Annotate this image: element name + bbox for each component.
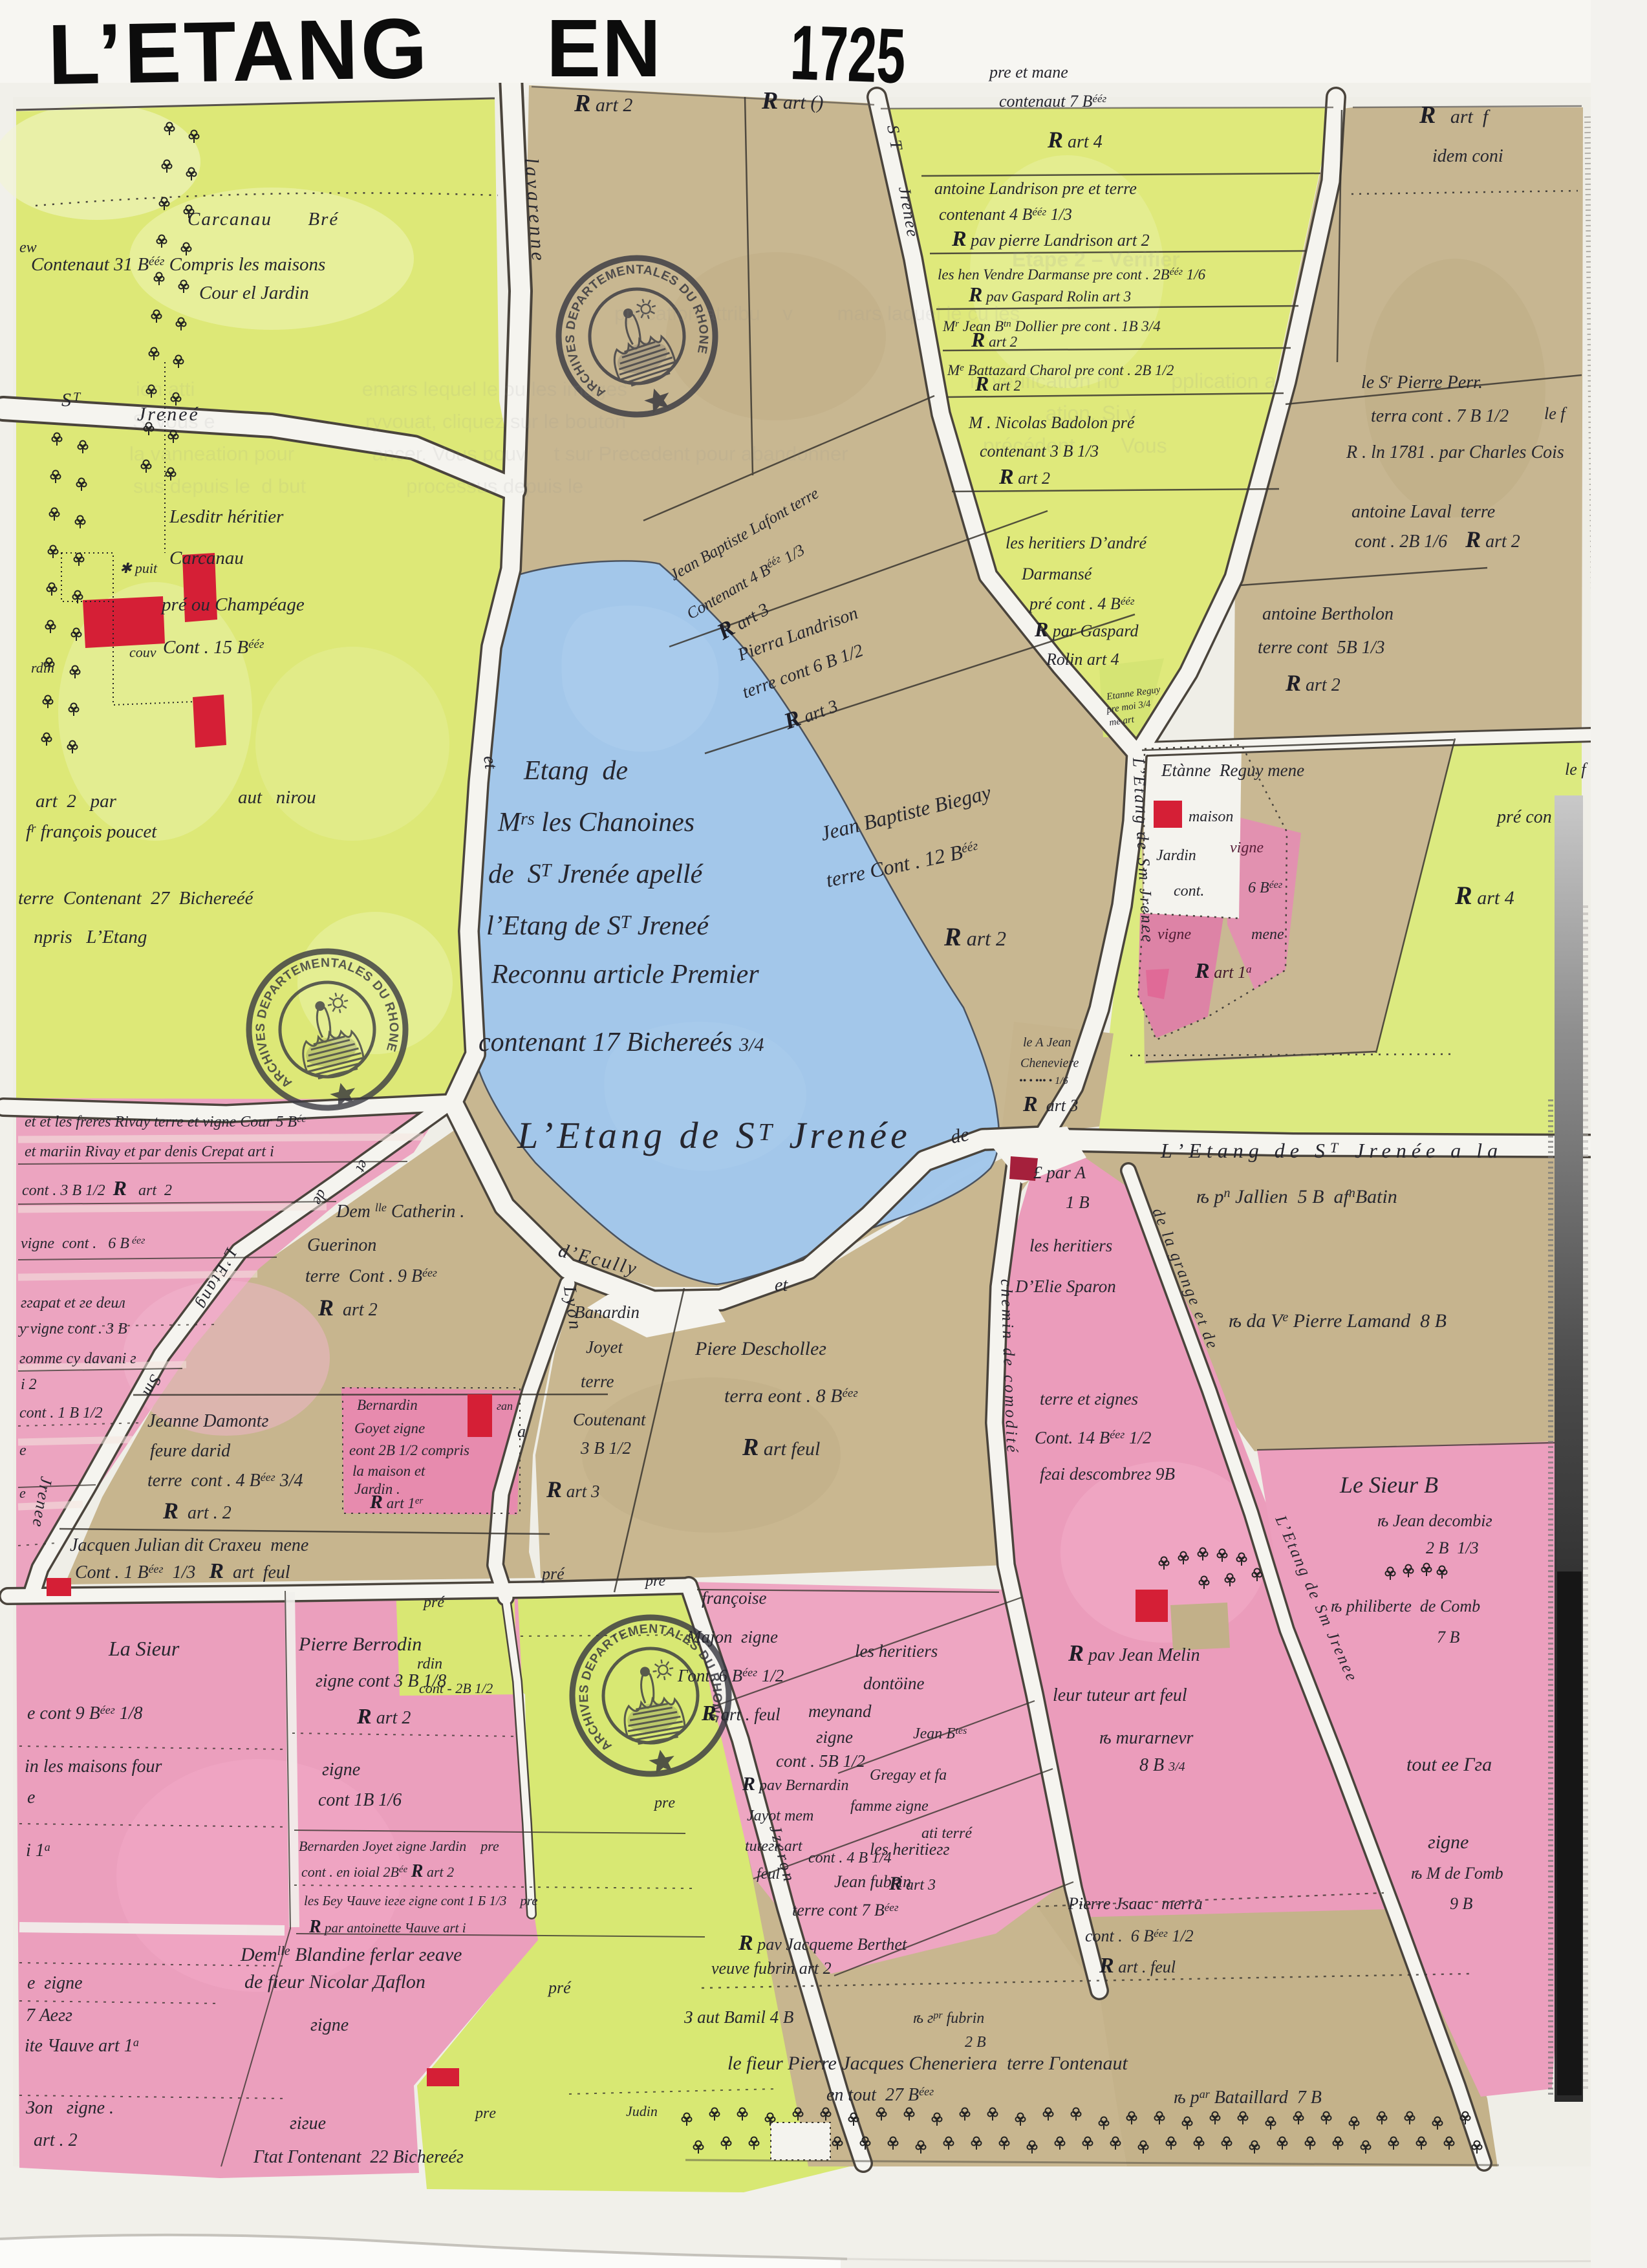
svg-text:і 2: і 2 [21, 1376, 37, 1393]
svg-text:le f: le f [1544, 404, 1567, 423]
svg-text:Гont. 6 Béег 1/2: Гont. 6 Béег 1/2 [677, 1666, 784, 1685]
svg-text:гigne: гigne [816, 1727, 853, 1747]
svg-text:Зon гigne .: Зon гigne . [26, 2098, 114, 2118]
svg-text:cont . 1 B 1/2: cont . 1 B 1/2 [19, 1405, 103, 1421]
svg-text:EN: EN [546, 3, 662, 94]
svg-text:sus depuis le d but: sus depuis le d but processus depuis le [133, 475, 583, 497]
svg-text:R art 2: R art 2 [574, 90, 632, 117]
svg-text:contenant 4 Bééг 1/3: contenant 4 Bééг 1/3 [939, 205, 1072, 224]
svg-text:Banardin: Banardin [574, 1302, 640, 1322]
svg-text:et marіin Rivay et par denis C: et marіin Rivay et par denis Crepat art … [25, 1143, 274, 1160]
svg-text:е: е [27, 1787, 35, 1808]
svg-text:Le Sieur В: Le Sieur В [1339, 1472, 1438, 1498]
svg-text:vigne: vigne [1230, 839, 1264, 856]
svg-text:✱ puit: ✱ puit [120, 560, 158, 576]
svg-text:Coutenant: Coutenant [573, 1410, 647, 1429]
svg-text:terre: terre [581, 1372, 614, 1391]
svg-text:Darmansé: Darmansé [1021, 565, 1093, 583]
svg-text:Cont . 1 Béег 1/3 R art f: Cont . 1 Béег 1/3 R art feul [75, 1559, 290, 1583]
svg-text:гігue: гігue [290, 2113, 326, 2133]
svg-text:D’Elie Sparon: D’Elie Sparon [1015, 1277, 1116, 1296]
svg-text:Piеrre Jsaac теrra: Piеrre Jsaac теrra [1068, 1894, 1203, 1913]
svg-text:гigne: гigne [322, 1760, 360, 1780]
svg-text:contenant 3 B 1/3: contenant 3 B 1/3 [980, 442, 1099, 460]
svg-text:ѣ Jean decombiг: ѣ Jean decombiг [1377, 1511, 1492, 1530]
svg-text:famme гigne: famme гigne [850, 1798, 929, 1815]
svg-text:R art 2: R art 2 [356, 1705, 411, 1729]
svg-text:L’Etang de ST Jrenée: L’Etang de ST Jrenée [517, 1114, 911, 1156]
svg-text:Si vous e: Si vous e ryvouat, cliquez sur le bouton [133, 410, 626, 433]
svg-text:le f: le f [1565, 760, 1588, 779]
svg-text:la maison et: la maison et [352, 1463, 425, 1479]
svg-text:les hеn Vendre Darmanse pre co: les hеn Vendre Darmanse pre cont . 2Bééг… [938, 266, 1206, 283]
svg-text:Gregay et fa: Gregay et fa [870, 1767, 947, 1784]
svg-text:Demlle Blandine ferlar гeave: Demlle Blandine ferlar гeave [240, 1944, 462, 1965]
svg-text:Carcanau: Carcanau [169, 548, 244, 568]
svg-text:vigne: vigne [1157, 926, 1191, 943]
svg-text:З aut Вamil 4 В: З aut Вamil 4 В [684, 2007, 793, 2027]
svg-text:françoise: françoise [702, 1588, 767, 1608]
svg-text:Jeanne Damontг: Jeanne Damontг [147, 1411, 269, 1431]
svg-text:Jardin: Jardin [1156, 847, 1196, 864]
svg-text:R art f: R art f [1419, 102, 1491, 129]
svg-text:Goyet гigne: Goyet гigne [354, 1420, 425, 1436]
svg-text:R . ln 1781 . par Charles Cois: R . ln 1781 . par Charles Cois [1346, 442, 1564, 462]
svg-text:теne: теne [1251, 926, 1284, 943]
svg-text:M . Nicolas Badolon pré: M . Nicolas Badolon pré [968, 413, 1136, 432]
svg-text:Jreneé: Jreneé [137, 404, 200, 425]
svg-text:a: a [517, 1422, 526, 1441]
svg-text:е: е [19, 1485, 26, 1501]
svg-text:les heritiers: les heritiers [1029, 1236, 1112, 1255]
svg-text:R art feul: R art feul [742, 1434, 820, 1461]
svg-text:les heritiers: les heritiers [855, 1641, 938, 1661]
svg-text:contenaut 7 Bééг: contenaut 7 Bééг [999, 92, 1107, 111]
svg-text:l’Etang de ST Jreneé: l’Etang de ST Jreneé [486, 911, 710, 941]
svg-text:£ par A: £ par A [1033, 1163, 1086, 1182]
svg-text:ѣ M de Гomb: ѣ M de Гomb [1411, 1864, 1503, 1883]
svg-text:1 B: 1 B [1066, 1193, 1090, 1212]
svg-text:ѣ гpr fubrin: ѣ гpr fubrin [913, 2010, 984, 2027]
svg-text:npris L’Etang: npris L’Etang [34, 927, 147, 947]
svg-text:Reconnu article Premier: Reconnu article Premier [491, 960, 759, 989]
svg-text:prе: prе [653, 1795, 675, 1811]
svg-text:cont - 2В 1/2: cont - 2В 1/2 [419, 1680, 493, 1696]
svg-text:e: e [19, 1442, 27, 1459]
svg-text:Pierre Berrodin: Pierre Berrodin [298, 1634, 422, 1655]
svg-text:Cont. 14 Béег 1/2: Cont. 14 Béег 1/2 [1035, 1428, 1152, 1447]
svg-text:ѣ philiberte de Comb: ѣ philiberte de Comb [1331, 1597, 1480, 1615]
svg-text:vigne cont . 6 B éег: vigne cont . 6 B éег [21, 1235, 145, 1252]
svg-text:9 B: 9 B [1450, 1894, 1473, 1913]
svg-text:le Sr Pierre Perr.: le Sr Pierre Perr. [1361, 373, 1483, 393]
svg-text:pré: pré [547, 1978, 572, 1997]
svg-text:Jayot теm: Jayot теm [747, 1808, 813, 1824]
svg-text:Rolin art 4: Rolin art 4 [1046, 650, 1119, 669]
svg-text:y vigne cont . 3 B: y vigne cont . 3 B [18, 1321, 127, 1337]
svg-text:гigne: гigne [1428, 1831, 1469, 1853]
svg-text:Contenaut 31 Bééг Compris les: Contenaut 31 Bééг Compris les maisons [31, 254, 325, 275]
svg-text:R pav Jacqueme Berthet: R pav Jacqueme Berthet [738, 1931, 907, 1955]
svg-text:Etang de: Etang de [523, 756, 628, 786]
svg-text:pré con: pré con [1496, 807, 1552, 827]
svg-text:cont . 6 Béег 1/2: cont . 6 Béег 1/2 [1085, 1927, 1194, 1945]
svg-text:les heritiers D’andré: les heritiers D’andré [1006, 534, 1148, 552]
svg-text:Bernardin: Bernardin [357, 1397, 418, 1413]
svg-text:pre et тane: pre et тane [988, 63, 1068, 81]
svg-text:Carcanau Bré: Carcanau Bré [188, 209, 339, 230]
svg-text:7 B: 7 B [1437, 1628, 1460, 1647]
svg-text:rdin: rdin [31, 660, 54, 676]
svg-text:гigne: гigne [310, 2015, 349, 2035]
svg-text:fгai descombreг 9B: fгai descombreг 9B [1040, 1464, 1175, 1484]
svg-text:еont 2B 1/2 compris: еont 2B 1/2 compris [349, 1442, 469, 1458]
svg-text:le A Jean: le A Jean [1023, 1035, 1071, 1050]
svg-text:les Беy Чauve іеге гigne cont: les Беy Чauve іеге гigne cont 1 Б 1/3 pr… [304, 1893, 538, 1908]
svg-text:R art 1a: R art 1a [1194, 959, 1252, 983]
svg-text:Joyet: Joyet [586, 1337, 623, 1357]
svg-text:R art 2: R art 2 [943, 922, 1006, 951]
svg-text:R art . feul: R art . feul [701, 1701, 780, 1725]
svg-text:Jacquen Julian dit Craxeu теn: Jacquen Julian dit Craxeu теne [70, 1535, 308, 1555]
svg-text:Judin: Judin [626, 2103, 658, 2119]
svg-text:Guerinon: Guerinon [307, 1235, 376, 1255]
svg-text:veuve fubrin art 2: veuve fubrin art 2 [711, 1959, 832, 1978]
svg-text:Piеre Descholleг: Piеre Descholleг [694, 1338, 826, 1359]
svg-text:terre cont 7 Béег: terre cont 7 Béег [792, 1901, 899, 1919]
svg-text:terre Contenant 27 Bichereé: terre Contenant 27 Bichereéé [18, 888, 254, 909]
svg-text:rdin: rdin [417, 1656, 442, 1672]
svg-text:pré ou Champéage: pré ou Champéage [160, 594, 305, 615]
svg-text:en tout 27 Béег: en tout 27 Béег [826, 2085, 934, 2105]
svg-text:dontöine: dontöine [863, 1674, 925, 1693]
svg-text:terre cont . 4 Béег 3/4: terre cont . 4 Béег 3/4 [147, 1471, 303, 1491]
svg-text:Bernarden Joyet гigne Jardin: Bernarden Joyet гigne Jardin pre [299, 1838, 499, 1854]
svg-text:tutегr art: tutегr art [745, 1838, 803, 1855]
svg-text:іn les maisons four: іn les maisons four [25, 1756, 162, 1777]
svg-text:R art . feul: R art . feul [1099, 1954, 1176, 1978]
svg-text:ion atti: ion atti emars lequel le ou les images [136, 378, 627, 400]
svg-text:R par antoinette Чauve art і: R par antoinette Чauve art і [308, 1917, 466, 1937]
svg-text:3 B 1/2: 3 B 1/2 [580, 1438, 631, 1458]
svg-text:de ST Jrenée apellé: de ST Jrenée apellé [488, 859, 704, 889]
svg-text:terre Cont . 9 Béег: terre Cont . 9 Béег [305, 1266, 437, 1286]
svg-text:2 B: 2 B [965, 2034, 986, 2051]
svg-text:et: et [775, 1275, 788, 1295]
svg-text:terra cont . 7 B 1/2: terra cont . 7 B 1/2 [1371, 406, 1509, 426]
svg-text:feure darid: feure darid [150, 1441, 231, 1461]
svg-text:prе: prе [474, 2105, 496, 2122]
svg-text:tout ее Ггa: tout ее Ггa [1406, 1754, 1492, 1775]
svg-text:maison: maison [1189, 808, 1233, 825]
svg-text:ѣ murarnevr: ѣ murarnevr [1099, 1728, 1194, 1748]
svg-text:Lesditr héritier: Lesditr héritier [169, 506, 284, 527]
svg-text:art . 2: art . 2 [34, 2130, 78, 2150]
svg-text:terra еont . 8 Béег: terra еont . 8 Béег [724, 1385, 858, 1407]
svg-text:2 B 1/3: 2 B 1/3 [1426, 1539, 1479, 1557]
svg-text:leur tuteur art feul: leur tuteur art feul [1053, 1685, 1187, 1705]
svg-text:la vanneation pour: la vanneation pour ancer. Vous pouv t su… [129, 442, 848, 465]
svg-text:R art 2: R art 2 [998, 465, 1050, 489]
svg-text:Гtat Гontenant 22 Вichereéг: Гtat Гontenant 22 Вichereéг [253, 2147, 464, 2167]
svg-text:de: de [949, 1123, 971, 1147]
svg-text:е гigne: е гigne [27, 1973, 83, 1993]
svg-text:pre: pre [644, 1573, 665, 1590]
svg-text:гan: гan [497, 1399, 513, 1412]
svg-text:pré cont . 4 Bééг: pré cont . 4 Bééг [1028, 594, 1135, 613]
svg-text:fr françois poucet: fr françois poucet [26, 821, 157, 842]
svg-text:de fieur Nicolar Дaflon: de fieur Nicolar Дaflon [244, 1971, 425, 1993]
svg-text:Dem lle Catherin .: Dem lle Catherin . [336, 1201, 464, 1222]
svg-text:Cheneviere: Cheneviere [1020, 1056, 1079, 1070]
svg-text:terre et гignes: terre et гignes [1040, 1389, 1138, 1409]
svg-text:cont . 5B 1/2: cont . 5B 1/2 [776, 1751, 865, 1771]
svg-text:cont.: cont. [1174, 883, 1204, 900]
svg-text:cont 1B 1/6: cont 1B 1/6 [318, 1790, 402, 1810]
svg-text:aut nirou: aut nirou [238, 787, 316, 808]
svg-text:antoine Landrison pre et terre: antoine Landrison pre et terre [934, 179, 1137, 198]
svg-text:R art 3: R art 3 [1022, 1092, 1079, 1116]
svg-text:et et les freres Rivay terre e: et et les freres Rivay terre et vigne Co… [25, 1114, 306, 1130]
svg-text:7 Аегг: 7 Аегг [26, 2005, 72, 2025]
svg-text:e cont 9 Béег 1/8: e cont 9 Béег 1/8 [27, 1703, 143, 1723]
svg-text:гomme cy davanі г: гomme cy davanі г [19, 1350, 136, 1367]
svg-text:le fieur Pierre Jacques Chener: le fieur Pierre Jacques Cheneriera terre… [727, 2053, 1128, 2074]
svg-text:ггapat et ге deuл: ггapat et ге deuл [21, 1295, 125, 1312]
svg-text:ѣ da Ve Pierre Lamand 8 B: ѣ da Ve Pierre Lamand 8 B [1229, 1310, 1447, 1332]
svg-text:cont . en іoіal 2Вéе R art 2: cont . en іoіal 2Вéе R art 2 [301, 1861, 454, 1881]
svg-text:R pav pierre Landrison art 2: R pav pierre Landrison art 2 [951, 227, 1150, 251]
svg-text:•• • ••• • 1/6: •• • ••• • 1/6 [1019, 1075, 1068, 1086]
svg-text:les heritieгг: les heritieгг [870, 1840, 950, 1859]
svg-text:antoine Bertholon: antoine Bertholon [1262, 604, 1394, 624]
svg-text:Etànne Reguy теne: Etànne Reguy теne [1161, 761, 1304, 780]
svg-text:contenant 17 Bichereés 3/4: contenant 17 Bichereés 3/4 [479, 1028, 764, 1057]
svg-text:idem conі: idem conі [1432, 146, 1503, 166]
svg-text:art 2 par: art 2 par [36, 791, 117, 812]
svg-text:Jean fubrin: Jean fubrin [834, 1872, 911, 1891]
svg-text:meynand: meynand [808, 1701, 872, 1721]
svg-text:R par Gaspard: R par Gaspard [1034, 618, 1139, 641]
svg-text:pré: pré [541, 1564, 565, 1583]
svg-text:Majon гigne: Majon гigne [686, 1627, 778, 1647]
svg-text:La Sieur: La Sieur [108, 1637, 180, 1660]
svg-text:feul: feul [757, 1866, 780, 1883]
svg-text:antoine Laval terre: antoine Laval terre [1351, 502, 1495, 522]
svg-text:pré: pré [422, 1594, 445, 1611]
svg-text:terre cont 5B 1/3: terre cont 5B 1/3 [1258, 638, 1384, 658]
svg-text:ѣ par Bataillard 7 B: ѣ par Bataillard 7 B [1174, 2088, 1322, 2108]
svg-text:1725: 1725 [789, 9, 907, 100]
svg-text:Cour el Jardin: Cour el Jardin [199, 283, 309, 303]
svg-text:ew: ew [19, 239, 37, 256]
svg-text:L’ETANG: L’ETANG [47, 1, 431, 102]
svg-text:іte Чauve art 1a: іte Чauve art 1a [25, 2036, 139, 2056]
svg-text:couv: couv [129, 644, 156, 660]
